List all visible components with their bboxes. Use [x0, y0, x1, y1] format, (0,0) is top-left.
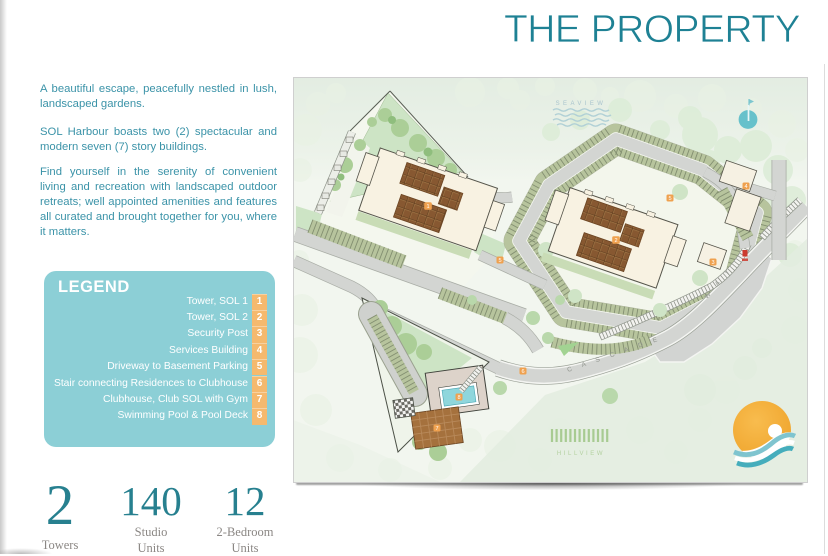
- svg-text:4: 4: [744, 184, 747, 190]
- svg-text:8: 8: [457, 395, 460, 401]
- svg-text:6: 6: [521, 369, 524, 375]
- svg-text:2: 2: [614, 238, 617, 244]
- svg-text:SEAVIEW: SEAVIEW: [556, 101, 607, 107]
- svg-text:3: 3: [711, 260, 714, 266]
- svg-text:5: 5: [498, 258, 501, 264]
- svg-text:5: 5: [668, 196, 671, 202]
- svg-text:1: 1: [426, 204, 429, 210]
- svg-text:HILLVIEW: HILLVIEW: [557, 451, 605, 457]
- svg-text:7: 7: [435, 426, 438, 432]
